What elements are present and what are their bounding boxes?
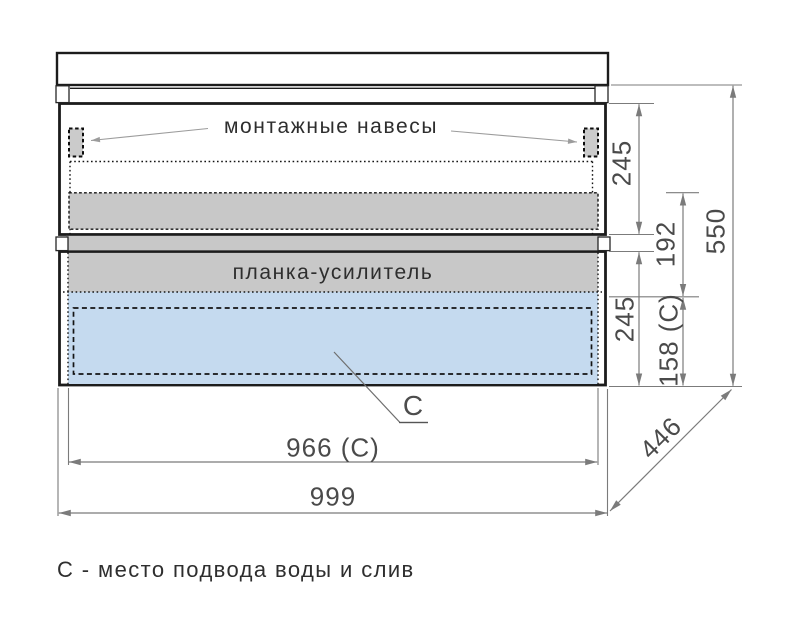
countertop — [57, 53, 608, 85]
dim-connection-height: 158 (C) — [654, 293, 685, 387]
plumbing-zone — [68, 292, 598, 384]
side-panel-notch-mid-left — [56, 237, 68, 251]
dim-connection-width: 966 (C) — [286, 433, 380, 464]
divider-rail — [66, 236, 600, 250]
reinforcement-bar-label: планка-усилитель — [233, 261, 434, 285]
connection-marker-label: C — [403, 390, 423, 422]
mounting-hangers-label: монтажные навесы — [224, 115, 438, 139]
vanity-dimension-drawing: монтажные навесы планка-усилитель C 245 … — [0, 0, 800, 635]
dimline-depth — [610, 390, 732, 512]
dim-overall-width: 999 — [310, 482, 356, 513]
dim-rail-spacing: 192 — [651, 221, 682, 267]
dim-upper-height: 245 — [607, 140, 638, 186]
legend-text: С - место подвода воды и слив — [57, 557, 415, 583]
drawer-slide-band — [69, 193, 598, 229]
side-panel-notch-mid-right — [598, 237, 610, 251]
dim-overall-height: 550 — [701, 208, 732, 254]
side-panel-notch-top-right — [595, 86, 608, 103]
mounting-hanger-right — [584, 129, 598, 157]
mounting-hanger-left — [69, 129, 83, 157]
dim-lower-height: 245 — [610, 296, 641, 342]
side-panel-notch-top-left — [56, 86, 69, 103]
